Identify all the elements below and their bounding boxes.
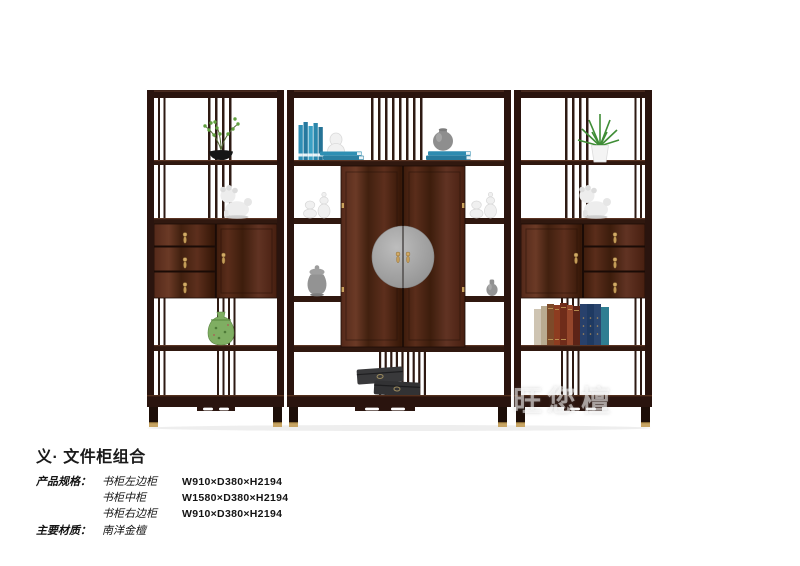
foo-dog-statue-left [220,185,252,219]
catalog-page: 旺您檀 义· 文件柜组合 产品规格： 书柜左边柜 W910×D380×H2194… [0,0,800,566]
small-gray-vase [486,280,497,297]
teal-books-stacked-left [320,152,364,161]
material-spacer [182,525,288,538]
material-label: 主要材质： [36,525,100,538]
gray-round-jar [433,128,453,151]
teal-books-stacked-right [426,151,471,160]
material-value: 南洋金檀 [102,525,180,538]
left-cabinet [147,90,284,427]
middle-cabinet-base [287,395,511,427]
right-cabinet-drawer-box [521,224,645,298]
right-cabinet [514,90,652,427]
spec-row-dims: W910×D380×H2194 [182,476,288,489]
foo-dog-statue-right [579,185,611,219]
spec-row-name: 书柜右边柜 [102,508,180,521]
spec-label: 产品规格： [36,476,100,489]
book-row-spines [534,303,609,345]
green-porcelain-jar [208,312,234,345]
white-glass-jars-right [470,192,497,218]
middle-cabinet-doors [341,166,465,347]
white-gourd-vase [328,133,345,160]
spec-row-name: 书柜左边柜 [102,476,180,489]
white-glass-jars-left [304,192,331,218]
floor-shadow [147,425,651,431]
potted-green-plant [578,114,619,162]
middle-cabinet [287,90,511,427]
material-row: 主要材质： 南洋金檀 [36,525,288,538]
product-info: 义· 文件柜组合 产品规格： 书柜左边柜 W910×D380×H2194 书柜中… [36,443,288,538]
right-cabinet-base [514,395,652,427]
spec-row-dims: W1580×D380×H2194 [182,492,288,505]
product-image [145,88,657,432]
left-cabinet-drawer-box [154,224,277,298]
spec-row-dims: W910×D380×H2194 [182,508,288,521]
black-storage-boxes [357,366,421,396]
furniture-illustration [145,88,657,432]
spec-label-spacer [36,508,100,521]
left-cabinet-base [147,395,284,427]
teal-books-standing [299,122,323,160]
spec-row-name: 书柜中柜 [102,492,180,505]
spec-table: 产品规格： 书柜左边柜 W910×D380×H2194 书柜中柜 W1580×D… [36,476,288,521]
spec-label-spacer [36,492,100,505]
gray-lidded-jar [308,265,327,296]
product-title: 义· 文件柜组合 [36,443,288,467]
